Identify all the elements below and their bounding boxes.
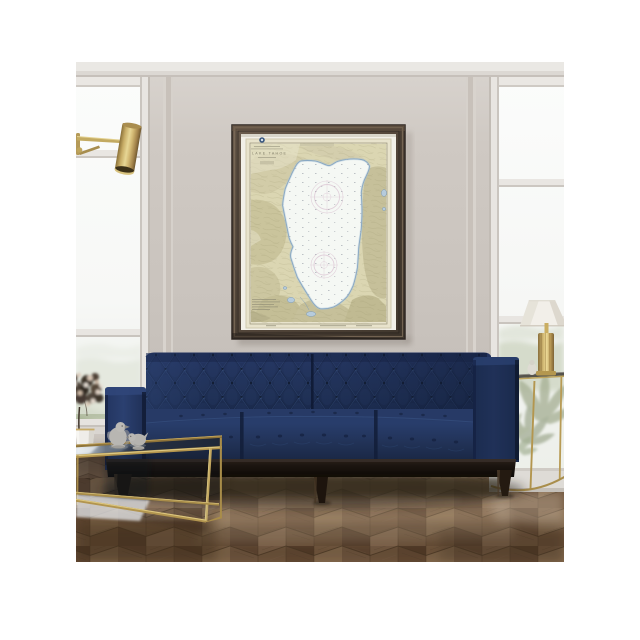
svg-text:LAKE TAHOE: LAKE TAHOE [252,152,287,156]
